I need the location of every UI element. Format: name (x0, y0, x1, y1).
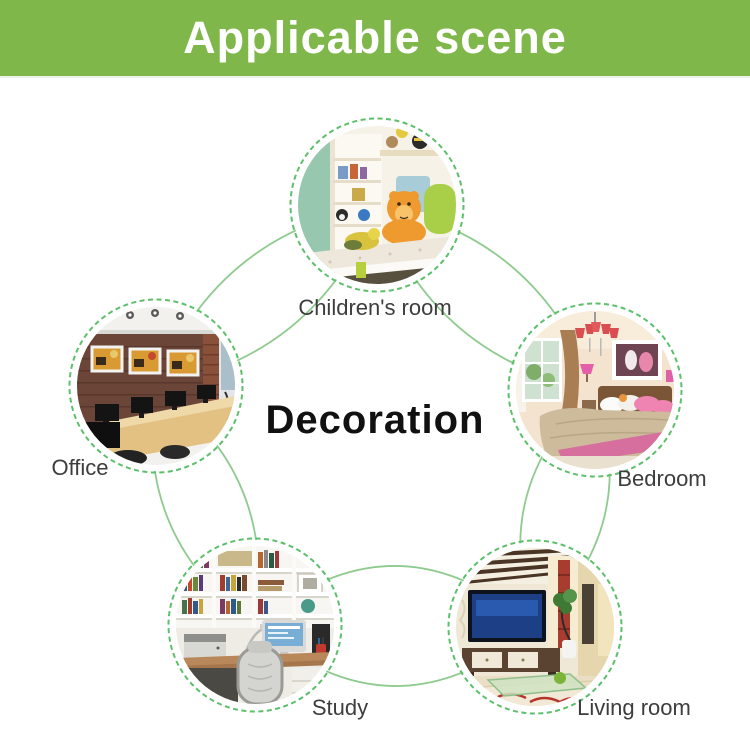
center-title: Decoration (266, 398, 485, 443)
office-circle (70, 300, 243, 473)
office-label: Office (51, 455, 108, 481)
study-photo (176, 546, 334, 704)
bedroom-label: Bedroom (617, 466, 706, 492)
living-room-photo (456, 548, 614, 706)
study-circle (169, 539, 342, 712)
bedroom-photo (516, 311, 675, 469)
children-room-label: Children's room (298, 295, 451, 321)
children-room-circle (291, 119, 464, 292)
applicable-scene-infographic: Applicable scene (0, 0, 750, 750)
decoration-diagram (0, 0, 750, 750)
study-label: Study (312, 695, 368, 721)
living-room-circle (449, 541, 622, 714)
living-room-label: Living room (577, 695, 691, 721)
bedroom-circle (509, 304, 682, 477)
